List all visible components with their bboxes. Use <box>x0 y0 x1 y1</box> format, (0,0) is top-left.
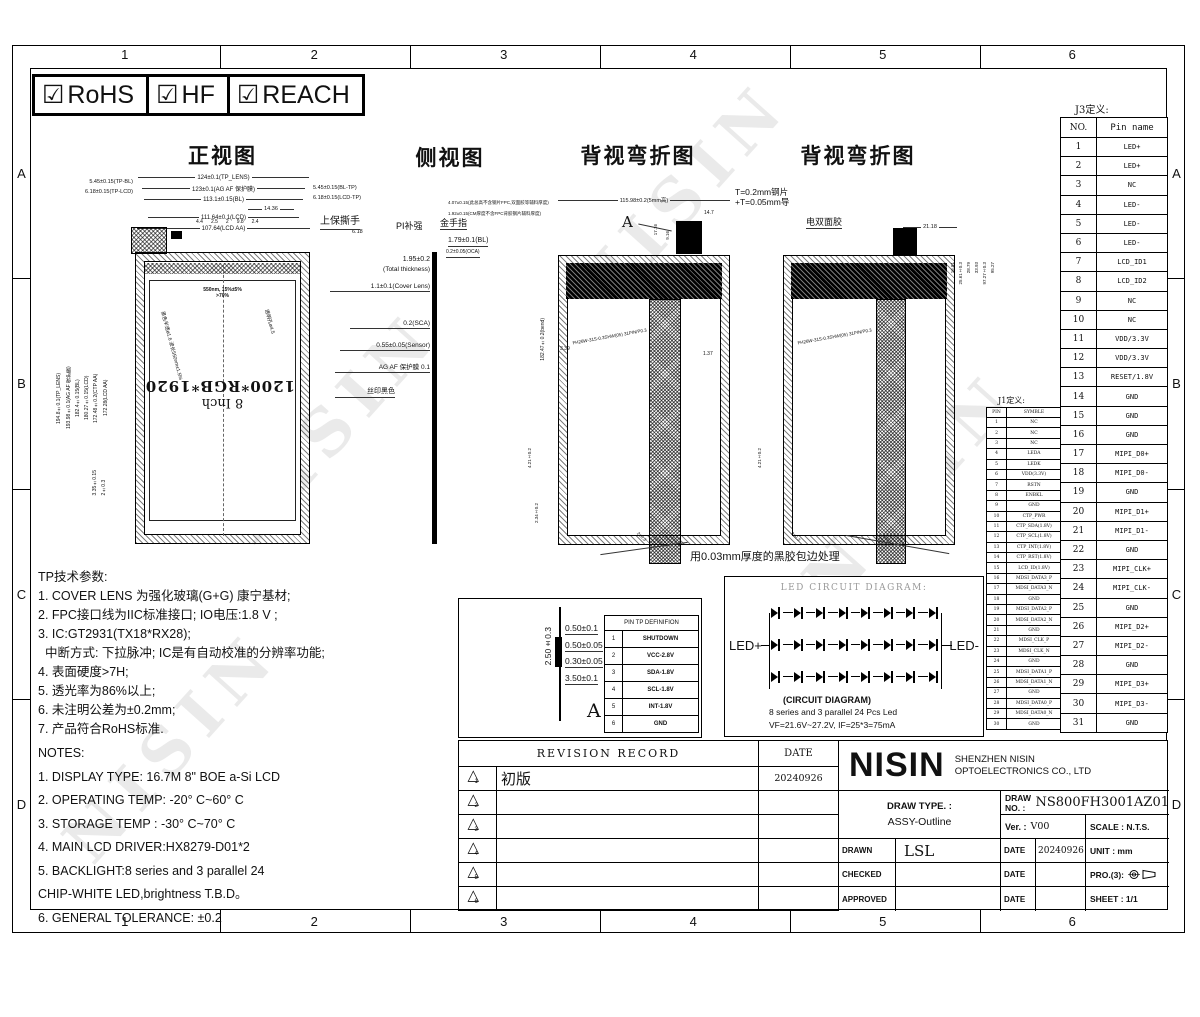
note-line: 2. OPERATING TEMP: -20° C~60° C <box>38 789 458 813</box>
j3-pin-name: MIPI_CLK+ <box>1097 560 1168 579</box>
company-name-line1: SHENZHEN NISIN <box>955 754 1091 766</box>
zone-label: C <box>1168 489 1185 700</box>
zone-columns-top: 123456 <box>30 47 1167 62</box>
j3-pin-name: RESET/1.8V <box>1097 368 1168 387</box>
j1-row: 25 MDSI_DATA1_P <box>987 667 1062 677</box>
j1-row: 20 MDSI_DATA2_N <box>987 615 1062 625</box>
title-block: NISIN SHENZHEN NISIN OPTOELECTRONICS CO.… <box>838 740 1168 910</box>
revision-number: 3 <box>475 822 478 838</box>
j1-pin-name: NC <box>1007 438 1062 448</box>
company-logo: NISIN <box>849 746 945 785</box>
j3-row: 24 MIPI_CLK- <box>1061 579 1168 598</box>
company-name: SHENZHEN NISIN OPTOELECTRONICS CO., LTD <box>955 754 1091 778</box>
revision-description <box>497 791 759 815</box>
j3-pin-no: 29 <box>1061 675 1097 694</box>
j3-row: 25 GND <box>1061 598 1168 617</box>
j1-row: 27 GND <box>987 688 1062 698</box>
revision-triangle-icon: 6 <box>468 888 488 904</box>
j1-pin-no: 11 <box>987 521 1007 531</box>
j3-pin-no: 23 <box>1061 560 1097 579</box>
zone-label: B <box>1168 279 1185 490</box>
version-value: V00 <box>1031 821 1050 832</box>
revision-row: 4 <box>459 839 839 863</box>
j1-pin-no: 28 <box>987 698 1007 708</box>
checked-value-cell <box>896 863 1001 887</box>
j3-row: 30 MIPI_D3- <box>1061 694 1168 713</box>
j1-pin-no: 30 <box>987 719 1007 729</box>
j1-row: 24 GND <box>987 656 1062 666</box>
j1-pin-no: 19 <box>987 605 1007 615</box>
j3-pin-no: 18 <box>1061 464 1097 483</box>
j1-row: 18 GND <box>987 594 1062 604</box>
notes-title: NOTES: <box>38 742 458 766</box>
j1-pin-name: MDSI_DATA2_P <box>1007 605 1062 615</box>
date-label-cell: DATE <box>1001 887 1036 911</box>
tp-notes-title: TP技术参数: <box>38 568 458 587</box>
j3-pin-no: 20 <box>1061 502 1097 521</box>
zone-label: 6 <box>978 47 1168 62</box>
j1-pin-name: CTP_SCL(1.8V) <box>1007 532 1062 542</box>
revision-description <box>497 887 759 911</box>
unit-value: UNIT : mm <box>1090 846 1133 856</box>
note-line: 3. STORAGE TEMP : -30° C~70° C <box>38 813 458 837</box>
revision-date-header: DATE <box>759 741 839 767</box>
zone-label: 1 <box>30 47 220 62</box>
j1-pin-name: ENBKL <box>1007 490 1062 500</box>
note-line: CHIP-WHITE LED,brightness T.B.D。 <box>38 883 458 907</box>
drawn-value: LSL <box>904 842 934 860</box>
checkbox-icon: ☑ <box>237 80 259 110</box>
scale-cell: SCALE : N.T.S. <box>1086 815 1169 839</box>
zone-label: 5 <box>788 47 978 62</box>
j1-row: 23 MDSI_CLK_N <box>987 646 1062 656</box>
checkbox-icon: ☑ <box>42 80 64 110</box>
drawn-date-value: 20240926 <box>1038 846 1084 856</box>
j3-pin-name: GND <box>1097 425 1168 444</box>
j1-row: 10 CTP_PWR <box>987 511 1062 521</box>
checkbox-icon: ☑ <box>156 80 178 110</box>
tp-note-line: 5. 透光率为86%以上; <box>38 682 458 701</box>
tp-notes: TP技术参数: 1. COVER LENS 为强化玻璃(G+G) 康宁基材;2.… <box>38 568 458 739</box>
j3-pin-name: LED- <box>1097 233 1168 252</box>
j3-pin-name: MIPI_D1+ <box>1097 502 1168 521</box>
note-line: 6. GENERAL TOLERANCE: ±0.2 <box>38 907 458 931</box>
j3-row: 31 GND <box>1061 713 1168 732</box>
j3-pin-no: 19 <box>1061 483 1097 502</box>
j3-pin-name: VDD/3.3V <box>1097 329 1168 348</box>
j3-pin-name: MIPI_D2- <box>1097 636 1168 655</box>
j1-pin-name: GND <box>1007 719 1062 729</box>
projection-cell: PRO.(3): <box>1086 863 1169 887</box>
zone-label: C <box>13 489 30 700</box>
j3-pin-no: 1 <box>1061 138 1097 157</box>
j3-row: 28 GND <box>1061 656 1168 675</box>
j1-pin-name: GND <box>1007 625 1062 635</box>
j3-pin-no: 26 <box>1061 617 1097 636</box>
j1-row: 11 CTP_SDA(1.8V) <box>987 521 1062 531</box>
j3-row: 27 MIPI_D2- <box>1061 636 1168 655</box>
cert-badges: ☑ RoHS ☑ HF ☑ REACH <box>35 74 365 116</box>
j1-pin-no: 26 <box>987 677 1007 687</box>
j1-pin-name: MDSI_CLK_N <box>1007 646 1062 656</box>
revision-row: 1 初版 20240926 <box>459 767 839 791</box>
j3-pin-no: 2 <box>1061 157 1097 176</box>
j1-row: 30 GND <box>987 719 1062 729</box>
checked-date-cell <box>1036 863 1086 887</box>
j1-row: 9 GND <box>987 501 1062 511</box>
j1-pin-name: GND <box>1007 501 1062 511</box>
date-label-cell: DATE <box>1001 839 1036 863</box>
version-label: Ver. : <box>1005 822 1027 832</box>
third-angle-projection-icon <box>1128 868 1158 881</box>
j1-row: 14 CTP_RST(1.8V) <box>987 553 1062 563</box>
j3-pin-name: LED- <box>1097 214 1168 233</box>
j1-pin-name: MDSI_DATA1_N <box>1007 677 1062 687</box>
cert-badge: ☑ RoHS <box>32 74 149 116</box>
revision-triangle-icon: 1 <box>468 768 488 784</box>
revision-number: 1 <box>475 774 478 790</box>
j3-pin-name: NC <box>1097 310 1168 329</box>
j3-pin-name: LED- <box>1097 195 1168 214</box>
j3-row: 4 LED- <box>1061 195 1168 214</box>
j1-table-title: J1定义: <box>998 396 1025 405</box>
revision-row: 6 <box>459 887 839 911</box>
j3-row: 5 LED- <box>1061 214 1168 233</box>
tp-note-line: 4. 表面硬度>7H; <box>38 663 458 682</box>
revision-row: 3 <box>459 815 839 839</box>
draw-no-value: NS800FH3001AZ01 <box>1036 795 1170 810</box>
drawn-label-cell: DRAWN <box>839 839 896 863</box>
j1-pin-no: 3 <box>987 438 1007 448</box>
j1-pin-name: MDSI_CLK_P <box>1007 636 1062 646</box>
note-line: 4. MAIN LCD DRIVER:HX8279-D01*2 <box>38 836 458 860</box>
drawn-date-cell: 20240926 <box>1036 839 1086 863</box>
j3-row: 17 MIPI_D0+ <box>1061 445 1168 464</box>
j3-pin-name: MIPI_CLK- <box>1097 579 1168 598</box>
j1-pin-no: 6 <box>987 469 1007 479</box>
revision-number: 4 <box>475 846 478 862</box>
revision-triangle-icon: 4 <box>468 840 488 856</box>
j1-pin-no: 8 <box>987 490 1007 500</box>
j3-pin-no: 4 <box>1061 195 1097 214</box>
j3-pin-name: MIPI_D3+ <box>1097 675 1168 694</box>
j3-pin-name: MIPI_D3- <box>1097 694 1168 713</box>
j3-row: 26 MIPI_D2+ <box>1061 617 1168 636</box>
j3-pin-no: 31 <box>1061 713 1097 732</box>
j3-pin-name: MIPI_D1- <box>1097 521 1168 540</box>
date-label: DATE <box>1004 870 1025 879</box>
j3-pin-name: NC <box>1097 176 1168 195</box>
j1-row: 21 GND <box>987 625 1062 635</box>
j3-row: 20 MIPI_D1+ <box>1061 502 1168 521</box>
j3-row: 2 LED+ <box>1061 157 1168 176</box>
cert-label: REACH <box>262 81 350 110</box>
j1-row: 2 NC <box>987 428 1062 438</box>
tp-note-line: 7. 产品符合RoHS标准. <box>38 720 458 739</box>
j1-pin-no: 27 <box>987 688 1007 698</box>
j1-row: 7 RSTN <box>987 480 1062 490</box>
j3-pin-name: LCD_ID2 <box>1097 272 1168 291</box>
j1-pin-name: LEDK <box>1007 459 1062 469</box>
zone-label: A <box>1168 68 1185 279</box>
revision-row: 2 <box>459 791 839 815</box>
j3-pin-no: 9 <box>1061 291 1097 310</box>
j3-row: 23 MIPI_CLK+ <box>1061 560 1168 579</box>
j1-pin-name: NC <box>1007 428 1062 438</box>
j1-pin-name: LCD_ID(1.8V) <box>1007 563 1062 573</box>
j3-row: 18 MIPI_D0- <box>1061 464 1168 483</box>
j3-pin-name: MIPI_D0+ <box>1097 445 1168 464</box>
zone-label: 2 <box>220 47 410 62</box>
j1-pin-no: 9 <box>987 501 1007 511</box>
zone-label: 4 <box>599 914 789 929</box>
j1-pin-name: GND <box>1007 656 1062 666</box>
revision-date <box>759 839 839 863</box>
revision-number: 2 <box>475 798 478 814</box>
j1-pin-no: 17 <box>987 584 1007 594</box>
j3-pin-no: 7 <box>1061 253 1097 272</box>
cert-badge: ☑ HF <box>146 74 230 116</box>
j1-pin-no: 29 <box>987 708 1007 718</box>
revision-triangle-icon: 5 <box>468 864 488 880</box>
j1-pin-no: 2 <box>987 428 1007 438</box>
j3-row: 1 LED+ <box>1061 138 1168 157</box>
j3-col-pinname: Pin name <box>1097 118 1168 138</box>
j3-row: 12 VDD/3.3V <box>1061 349 1168 368</box>
draw-no-cell: DRAW NO. : NS800FH3001AZ01 <box>1001 791 1169 815</box>
j3-table-title: J3定义: <box>1075 105 1109 117</box>
j3-row: 29 MIPI_D3+ <box>1061 675 1168 694</box>
revision-description <box>497 863 759 887</box>
j3-pin-name: VDD/3.3V <box>1097 349 1168 368</box>
zone-label: D <box>1168 700 1185 911</box>
j1-pin-no: 10 <box>987 511 1007 521</box>
revision-row: 5 <box>459 863 839 887</box>
revision-description: 初版 <box>497 767 759 791</box>
zone-label: 6 <box>978 914 1168 929</box>
j3-row: 21 MIPI_D1- <box>1061 521 1168 540</box>
scale-value: SCALE : N.T.S. <box>1090 822 1150 832</box>
j1-pin-no: 1 <box>987 418 1007 428</box>
revision-date <box>759 815 839 839</box>
zone-label: 4 <box>599 47 789 62</box>
j1-pin-name: CTP_RST(1.8V) <box>1007 553 1062 563</box>
j1-pin-name: MDSI_DATA0_N <box>1007 708 1062 718</box>
j3-pin-name: LED+ <box>1097 157 1168 176</box>
j3-row: 10 NC <box>1061 310 1168 329</box>
revision-date <box>759 791 839 815</box>
cert-label: HF <box>182 81 215 110</box>
j3-row: 15 GND <box>1061 406 1168 425</box>
j1-row: 1 NC <box>987 418 1062 428</box>
j1-pin-name: NC <box>1007 418 1062 428</box>
j3-pin-name: MIPI_D0- <box>1097 464 1168 483</box>
sheet-cell: SHEET : 1/1 <box>1086 887 1169 911</box>
j3-pin-name: GND <box>1097 540 1168 559</box>
tp-note-line: 2. FPC接口线为IIC标准接口; IO电压:1.8 V ; <box>38 606 458 625</box>
j3-pin-no: 17 <box>1061 445 1097 464</box>
revision-date <box>759 863 839 887</box>
date-label-cell: DATE <box>1001 863 1036 887</box>
j3-pin-no: 13 <box>1061 368 1097 387</box>
j1-pin-no: 20 <box>987 615 1007 625</box>
version-cell: Ver. : V00 <box>1001 815 1086 839</box>
unit-cell: UNIT : mm <box>1086 839 1169 863</box>
j3-pin-no: 25 <box>1061 598 1097 617</box>
j1-pin-no: 15 <box>987 563 1007 573</box>
j1-pin-no: 18 <box>987 594 1007 604</box>
company-name-line2: OPTOELECTRONICS CO., LTD <box>955 766 1091 778</box>
j1-pin-name: MDSI_DATA1_P <box>1007 667 1062 677</box>
zone-label: D <box>13 700 30 911</box>
j1-pin-name: MDSI_DATA2_N <box>1007 615 1062 625</box>
j3-pin-name: GND <box>1097 656 1168 675</box>
j1-row: 12 CTP_SCL(1.8V) <box>987 532 1062 542</box>
j1-col-symbol: SYMBLE <box>1007 408 1062 418</box>
j3-pin-name: GND <box>1097 713 1168 732</box>
j3-pin-no: 15 <box>1061 406 1097 425</box>
j1-row: 29 MDSI_DATA0_N <box>987 708 1062 718</box>
j1-pin-no: 7 <box>987 480 1007 490</box>
j3-pin-no: 27 <box>1061 636 1097 655</box>
j3-row: 14 GND <box>1061 387 1168 406</box>
j3-pin-table: NO. Pin name 1 LED+ 2 LED+ 3 NC 4 LED- <box>1060 117 1168 733</box>
revision-date: 20240926 <box>759 767 839 791</box>
j3-pin-name: MIPI_D2+ <box>1097 617 1168 636</box>
cert-label: RoHS <box>67 81 134 110</box>
j3-row: 7 LCD_ID1 <box>1061 253 1168 272</box>
back-view-1-title: 背视弯折图 <box>558 140 718 170</box>
j3-pin-no: 12 <box>1061 349 1097 368</box>
j3-row: 6 LED- <box>1061 233 1168 252</box>
front-view-title: 正视图 <box>155 140 290 170</box>
revision-triangle-icon: 2 <box>468 792 488 808</box>
revision-triangle-icon: 3 <box>468 816 488 832</box>
j1-pin-name: VDD(3.3V) <box>1007 469 1062 479</box>
j1-pin-name: CTP_PWR <box>1007 511 1062 521</box>
j3-pin-no: 10 <box>1061 310 1097 329</box>
drawn-value-cell: LSL <box>896 839 1001 863</box>
j1-row: 17 MDSI_DATA3_N <box>987 584 1062 594</box>
side-view-title: 侧视图 <box>395 142 505 172</box>
j3-pin-name: GND <box>1097 598 1168 617</box>
j3-col-no: NO. <box>1061 118 1097 138</box>
j1-row: 13 CTP_INT(1.8V) <box>987 542 1062 552</box>
j1-pin-name: MDSI_DATA3_N <box>1007 584 1062 594</box>
j1-pin-name: RSTN <box>1007 480 1062 490</box>
draw-type-value: ASSY-Outline <box>888 816 952 828</box>
j3-pin-no: 11 <box>1061 329 1097 348</box>
j1-row: 19 MDSI_DATA2_P <box>987 605 1062 615</box>
j3-pin-no: 6 <box>1061 233 1097 252</box>
draw-no-label: DRAW NO. : <box>1005 793 1034 813</box>
j1-pin-no: 23 <box>987 646 1007 656</box>
j3-row: 22 GND <box>1061 540 1168 559</box>
j3-pin-name: GND <box>1097 406 1168 425</box>
j1-pin-no: 22 <box>987 636 1007 646</box>
j3-pin-no: 16 <box>1061 425 1097 444</box>
j1-pin-name: CTP_INT(1.8V) <box>1007 542 1062 552</box>
j3-pin-no: 30 <box>1061 694 1097 713</box>
j3-row: 9 NC <box>1061 291 1168 310</box>
approved-date-cell <box>1036 887 1086 911</box>
j1-row: 22 MDSI_CLK_P <box>987 636 1062 646</box>
j3-pin-no: 22 <box>1061 540 1097 559</box>
j1-row: 26 MDSI_DATA1_N <box>987 677 1062 687</box>
j3-pin-name: GND <box>1097 483 1168 502</box>
j1-pin-no: 16 <box>987 573 1007 583</box>
j1-pin-no: 5 <box>987 459 1007 469</box>
revision-header: REVISION RECORD <box>459 741 759 767</box>
j3-row: 19 GND <box>1061 483 1168 502</box>
back-view-2-title: 背视弯折图 <box>778 140 938 170</box>
j3-row: 11 VDD/3.3V <box>1061 329 1168 348</box>
j3-row: 16 GND <box>1061 425 1168 444</box>
j3-pin-name: NC <box>1097 291 1168 310</box>
cert-badge: ☑ REACH <box>227 74 365 116</box>
j3-row: 3 NC <box>1061 176 1168 195</box>
j3-pin-no: 14 <box>1061 387 1097 406</box>
j1-pin-no: 13 <box>987 542 1007 552</box>
revision-number: 6 <box>475 894 478 910</box>
zone-label: 3 <box>409 47 599 62</box>
j1-pin-name: CTP_SDA(1.8V) <box>1007 521 1062 531</box>
j1-col-pin: PIN <box>987 408 1007 418</box>
zone-label: 5 <box>788 914 978 929</box>
revision-description <box>497 839 759 863</box>
j3-row: 8 LCD_ID2 <box>1061 272 1168 291</box>
company-header: NISIN SHENZHEN NISIN OPTOELECTRONICS CO.… <box>839 741 1169 791</box>
projection-label: PRO.(3): <box>1090 870 1124 880</box>
j1-pin-name: MDSI_DATA3_P <box>1007 573 1062 583</box>
j1-pin-name: GND <box>1007 594 1062 604</box>
general-notes: NOTES: 1. DISPLAY TYPE: 16.7M 8" BOE a-S… <box>38 742 458 930</box>
note-line: 5. BACKLIGHT:8 series and 3 parallel 24 <box>38 860 458 884</box>
j3-pin-no: 5 <box>1061 214 1097 233</box>
j1-pin-name: LEDA <box>1007 449 1062 459</box>
checked-label: CHECKED <box>842 870 882 879</box>
zone-rows-left: ABCD <box>13 68 30 910</box>
j1-pin-no: 24 <box>987 656 1007 666</box>
black-glue-edge-note: 用0.03mm厚度的黑胶包边处理 <box>690 551 840 564</box>
zone-label: B <box>13 279 30 490</box>
zone-label: A <box>13 68 30 279</box>
draw-type-label: DRAW TYPE. : <box>887 801 952 812</box>
approved-label: APPROVED <box>842 895 887 904</box>
j1-pin-table: PIN SYMBLE 1 NC 2 NC 3 NC 4 LEDA <box>986 407 1062 730</box>
j1-row: 8 ENBKL <box>987 490 1062 500</box>
sheet-value: SHEET : 1/1 <box>1090 894 1138 904</box>
checked-label-cell: CHECKED <box>839 863 896 887</box>
j3-pin-no: 28 <box>1061 656 1097 675</box>
j3-pin-name: LCD_ID1 <box>1097 253 1168 272</box>
revision-table: REVISION RECORD DATE 1 初版 20240926 2 3 <box>458 740 839 911</box>
date-label: DATE <box>1004 895 1025 904</box>
j1-pin-no: 12 <box>987 532 1007 542</box>
j1-row: 3 NC <box>987 438 1062 448</box>
tp-note-line: 3. IC:GT2931(TX18*RX28); <box>38 625 458 644</box>
zone-rows-right: ABCD <box>1168 68 1185 910</box>
date-label: DATE <box>1004 846 1025 855</box>
approved-label-cell: APPROVED <box>839 887 896 911</box>
j1-pin-no: 14 <box>987 553 1007 563</box>
j3-pin-no: 3 <box>1061 176 1097 195</box>
note-line: 1. DISPLAY TYPE: 16.7M 8" BOE a-Si LCD <box>38 766 458 790</box>
revision-description <box>497 815 759 839</box>
revision-date <box>759 887 839 911</box>
j1-row: 5 LEDK <box>987 459 1062 469</box>
j1-pin-name: MDSI_DATA0_P <box>1007 698 1062 708</box>
